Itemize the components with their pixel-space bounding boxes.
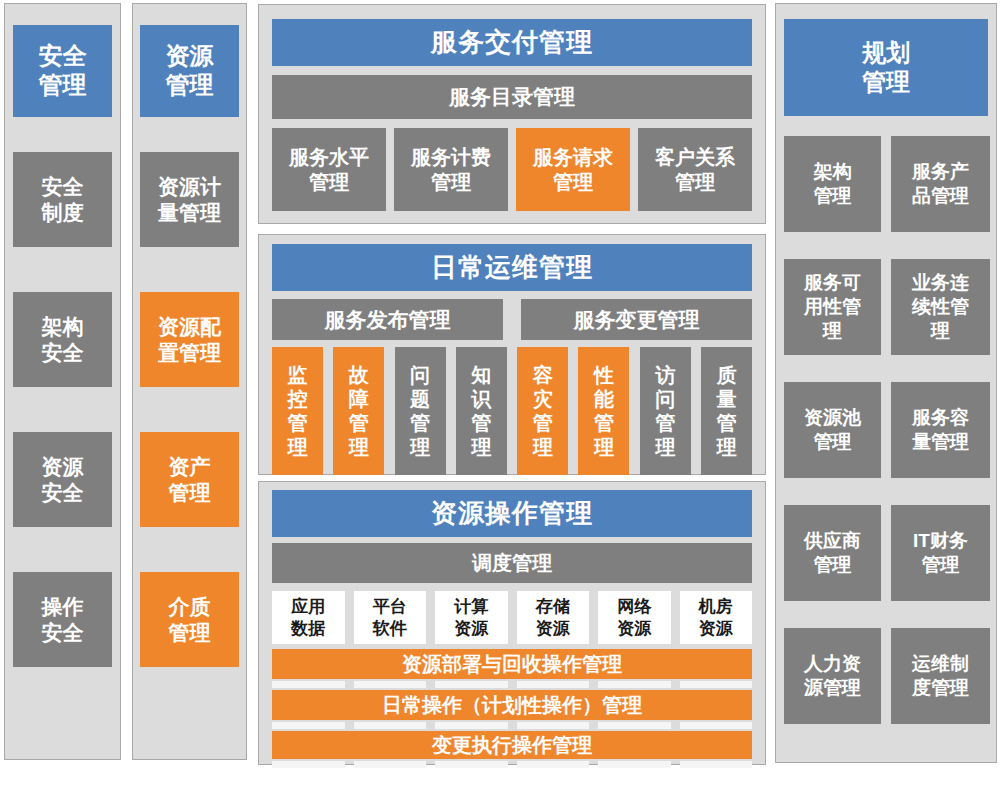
service-catalog-bar: 服务目录管理 bbox=[272, 75, 752, 119]
cell-it-finance-mgmt: IT财务 管理 bbox=[891, 505, 990, 601]
cell-service-capacity-mgmt: 服务容 量管理 bbox=[891, 382, 990, 478]
cell-storage-resource: 存储 资源 bbox=[517, 591, 590, 644]
cell-problem: 问 题 管 理 bbox=[395, 347, 446, 475]
bar-daily-planned-operation: 日常操作（计划性操作）管理 bbox=[272, 690, 752, 720]
cell-quality: 质 量 管 理 bbox=[701, 347, 752, 475]
planning-grid: 架构 管理 服务产 品管理 服务可 用性管 理 业务连 续性管 理 资源池 管理… bbox=[784, 136, 988, 724]
scheduling-bar: 调度管理 bbox=[272, 543, 752, 583]
cell-business-continuity-mgmt: 业务连 续性管 理 bbox=[891, 259, 990, 355]
panel-daily-operations: 日常运维管理 服务发布管理 服务变更管理 监 控 管 理 故 障 管 理 问 题… bbox=[258, 234, 766, 475]
resource-operation-title: 资源操作管理 bbox=[272, 490, 752, 537]
security-item-resource: 资源 安全 bbox=[13, 432, 112, 527]
cell-ops-institution-mgmt: 运维制 度管理 bbox=[891, 628, 990, 724]
security-item-architecture: 架构 安全 bbox=[13, 292, 112, 387]
cell-performance: 性 能 管 理 bbox=[578, 347, 629, 475]
grid-strip-row bbox=[272, 761, 752, 768]
service-delivery-title: 服务交付管理 bbox=[272, 19, 752, 66]
planning-header: 规划 管理 bbox=[784, 19, 988, 116]
cell-disaster-recovery: 容 灾 管 理 bbox=[517, 347, 568, 475]
cell-knowledge: 知 识 管 理 bbox=[456, 347, 507, 475]
security-item-operation: 操作 安全 bbox=[13, 572, 112, 667]
cell-service-billing: 服务计费 管理 bbox=[394, 128, 508, 211]
panel-service-delivery: 服务交付管理 服务目录管理 服务水平 管理 服务计费 管理 服务请求 管理 客户… bbox=[258, 4, 766, 224]
grid-strip-row bbox=[272, 681, 752, 688]
cell-architecture-mgmt: 架构 管理 bbox=[784, 136, 881, 232]
cell-application-data: 应用 数据 bbox=[272, 591, 345, 644]
daily-operations-bars: 服务发布管理 服务变更管理 bbox=[272, 299, 752, 340]
cell-service-availability-mgmt: 服务可 用性管 理 bbox=[784, 259, 881, 355]
resource-item-media: 介质 管理 bbox=[140, 572, 239, 667]
panel-resource-operation: 资源操作管理 调度管理 应用 数据 平台 软件 计算 资源 存储 资源 网络 资… bbox=[258, 481, 766, 765]
cell-customer-relation: 客户关系 管理 bbox=[638, 128, 752, 211]
cell-service-request: 服务请求 管理 bbox=[516, 128, 630, 211]
bar-deploy-reclaim: 资源部署与回收操作管理 bbox=[272, 649, 752, 679]
resource-type-cells: 应用 数据 平台 软件 计算 资源 存储 资源 网络 资源 机房 资源 bbox=[272, 591, 752, 644]
resource-header: 资源 管理 bbox=[140, 25, 239, 117]
bar-change-execution: 变更执行操作管理 bbox=[272, 731, 752, 759]
cell-service-level: 服务水平 管理 bbox=[272, 128, 386, 211]
daily-operations-cells: 监 控 管 理 故 障 管 理 问 题 管 理 知 识 管 理 容 灾 管 理 … bbox=[272, 347, 752, 475]
cell-supplier-mgmt: 供应商 管理 bbox=[784, 505, 881, 601]
cell-service-product-mgmt: 服务产 品管理 bbox=[891, 136, 990, 232]
panel-resource-management: 资源 管理 资源计 量管理 资源配 置管理 资产 管理 介质 管理 bbox=[132, 3, 247, 760]
security-header-label: 安全 管理 bbox=[39, 42, 87, 100]
resource-item-metering: 资源计 量管理 bbox=[140, 152, 239, 247]
resource-header-label: 资源 管理 bbox=[166, 42, 214, 100]
planning-header-label: 规划 管理 bbox=[862, 39, 910, 97]
cell-human-resource-mgmt: 人力资 源管理 bbox=[784, 628, 881, 724]
panel-security: 安全 管理 安全 制度 架构 安全 资源 安全 操作 安全 bbox=[4, 3, 121, 760]
resource-item-asset: 资产 管理 bbox=[140, 432, 239, 527]
cell-access: 访 问 管 理 bbox=[640, 347, 691, 475]
grid-strip-row bbox=[272, 722, 752, 729]
bar-service-release: 服务发布管理 bbox=[272, 299, 503, 340]
cell-monitoring: 监 控 管 理 bbox=[272, 347, 323, 475]
cell-datacenter-resource: 机房 资源 bbox=[680, 591, 753, 644]
service-delivery-cells: 服务水平 管理 服务计费 管理 服务请求 管理 客户关系 管理 bbox=[272, 128, 752, 211]
daily-operations-title: 日常运维管理 bbox=[272, 244, 752, 291]
itsm-framework-diagram: 安全 管理 安全 制度 架构 安全 资源 安全 操作 安全 资源 管理 资源计 … bbox=[0, 0, 1000, 785]
cell-fault: 故 障 管 理 bbox=[333, 347, 384, 475]
cell-network-resource: 网络 资源 bbox=[598, 591, 671, 644]
cell-compute-resource: 计算 资源 bbox=[435, 591, 508, 644]
security-item-institution: 安全 制度 bbox=[13, 152, 112, 247]
security-header: 安全 管理 bbox=[13, 25, 112, 117]
panel-planning: 规划 管理 架构 管理 服务产 品管理 服务可 用性管 理 业务连 续性管 理 … bbox=[775, 3, 997, 763]
cell-resource-pool-mgmt: 资源池 管理 bbox=[784, 382, 881, 478]
bar-service-change: 服务变更管理 bbox=[521, 299, 752, 340]
cell-platform-software: 平台 软件 bbox=[354, 591, 427, 644]
resource-item-configuration: 资源配 置管理 bbox=[140, 292, 239, 387]
